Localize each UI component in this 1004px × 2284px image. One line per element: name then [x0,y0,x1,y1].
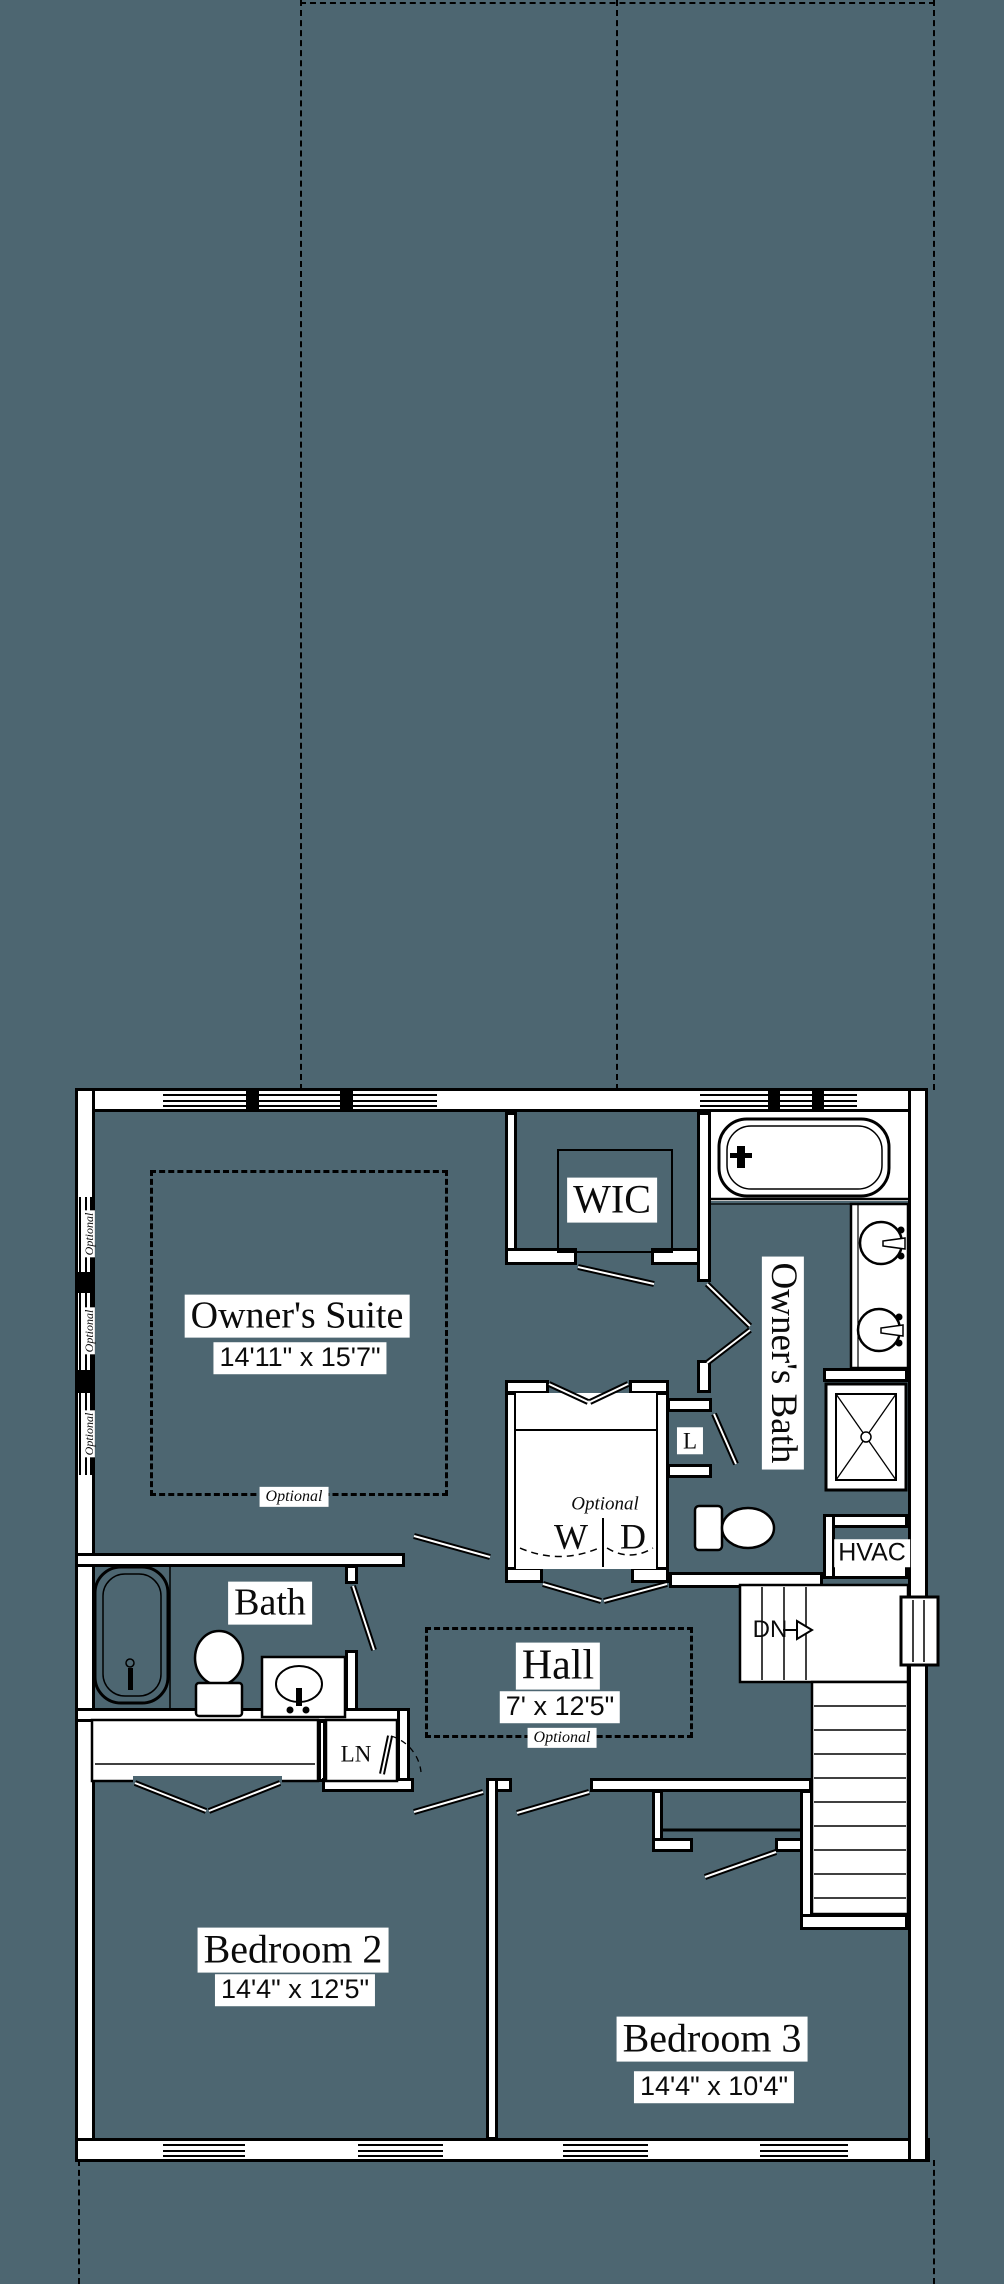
bedroom2-label: Bedroom 2 [198,1928,389,1973]
hall-label: Hall [516,1643,600,1690]
bedroom2-dims: 14'4" x 12'5" [215,1974,375,2006]
wic-label: WIC [567,1178,657,1223]
linen-closet-label: L [677,1427,703,1454]
stairs-down-label: DN [753,1618,788,1642]
hall-optional-tag: Optional [528,1728,597,1748]
owners-suite-dims: 14'11" x 15'7" [213,1342,386,1374]
owners-vanity [851,1204,908,1368]
bath-label: Bath [228,1582,312,1625]
hall-bath-toilet [195,1631,243,1716]
hall-linen-label: LN [335,1740,378,1767]
br2-closet-doors [135,1783,280,1811]
bedroom3-dims: 14'4" x 10'4" [634,2071,794,2103]
owners-bath-double-door [707,1284,750,1363]
owners-suite-optional-tag: Optional [260,1487,329,1507]
hall-bath-door [353,1586,374,1650]
owners-toilet [695,1506,774,1550]
br2-closet [92,1720,318,1784]
owners-tub [711,1112,908,1204]
floor-plan: Owner's Suite 14'11" x 15'7" Optional WI… [0,0,1004,2284]
window-optional-label-3: Optional [83,1411,95,1458]
window-optional-label-2: Optional [83,1308,95,1355]
br3-entry-door [517,1792,589,1813]
hvac-label: HVAC [834,1539,910,1567]
br2-entry-door [414,1792,483,1812]
dryer-label: D [614,1517,652,1558]
br3-closet-door [705,1852,776,1877]
hall-dims: 7' x 12'5" [500,1691,620,1723]
window-optional-label-1: Optional [83,1211,95,1258]
owners-suite-label: Owner's Suite [185,1295,410,1338]
wic-door [578,1267,654,1284]
hall-bath-vanity [262,1657,345,1717]
laundry-optional-tag: Optional [568,1494,642,1513]
shower [826,1384,906,1490]
stair-window [901,1597,938,1665]
fixtures-layer [0,0,1004,2284]
washer-label: W [548,1517,594,1558]
owners-bath-label: Owner's Bath [762,1257,804,1470]
suite-entry-door [414,1536,490,1557]
laundry-hall-double-door [543,1584,667,1601]
hall-bath-tub [95,1565,170,1708]
bedroom3-label: Bedroom 3 [617,2017,808,2062]
l-closet-door [714,1414,736,1464]
